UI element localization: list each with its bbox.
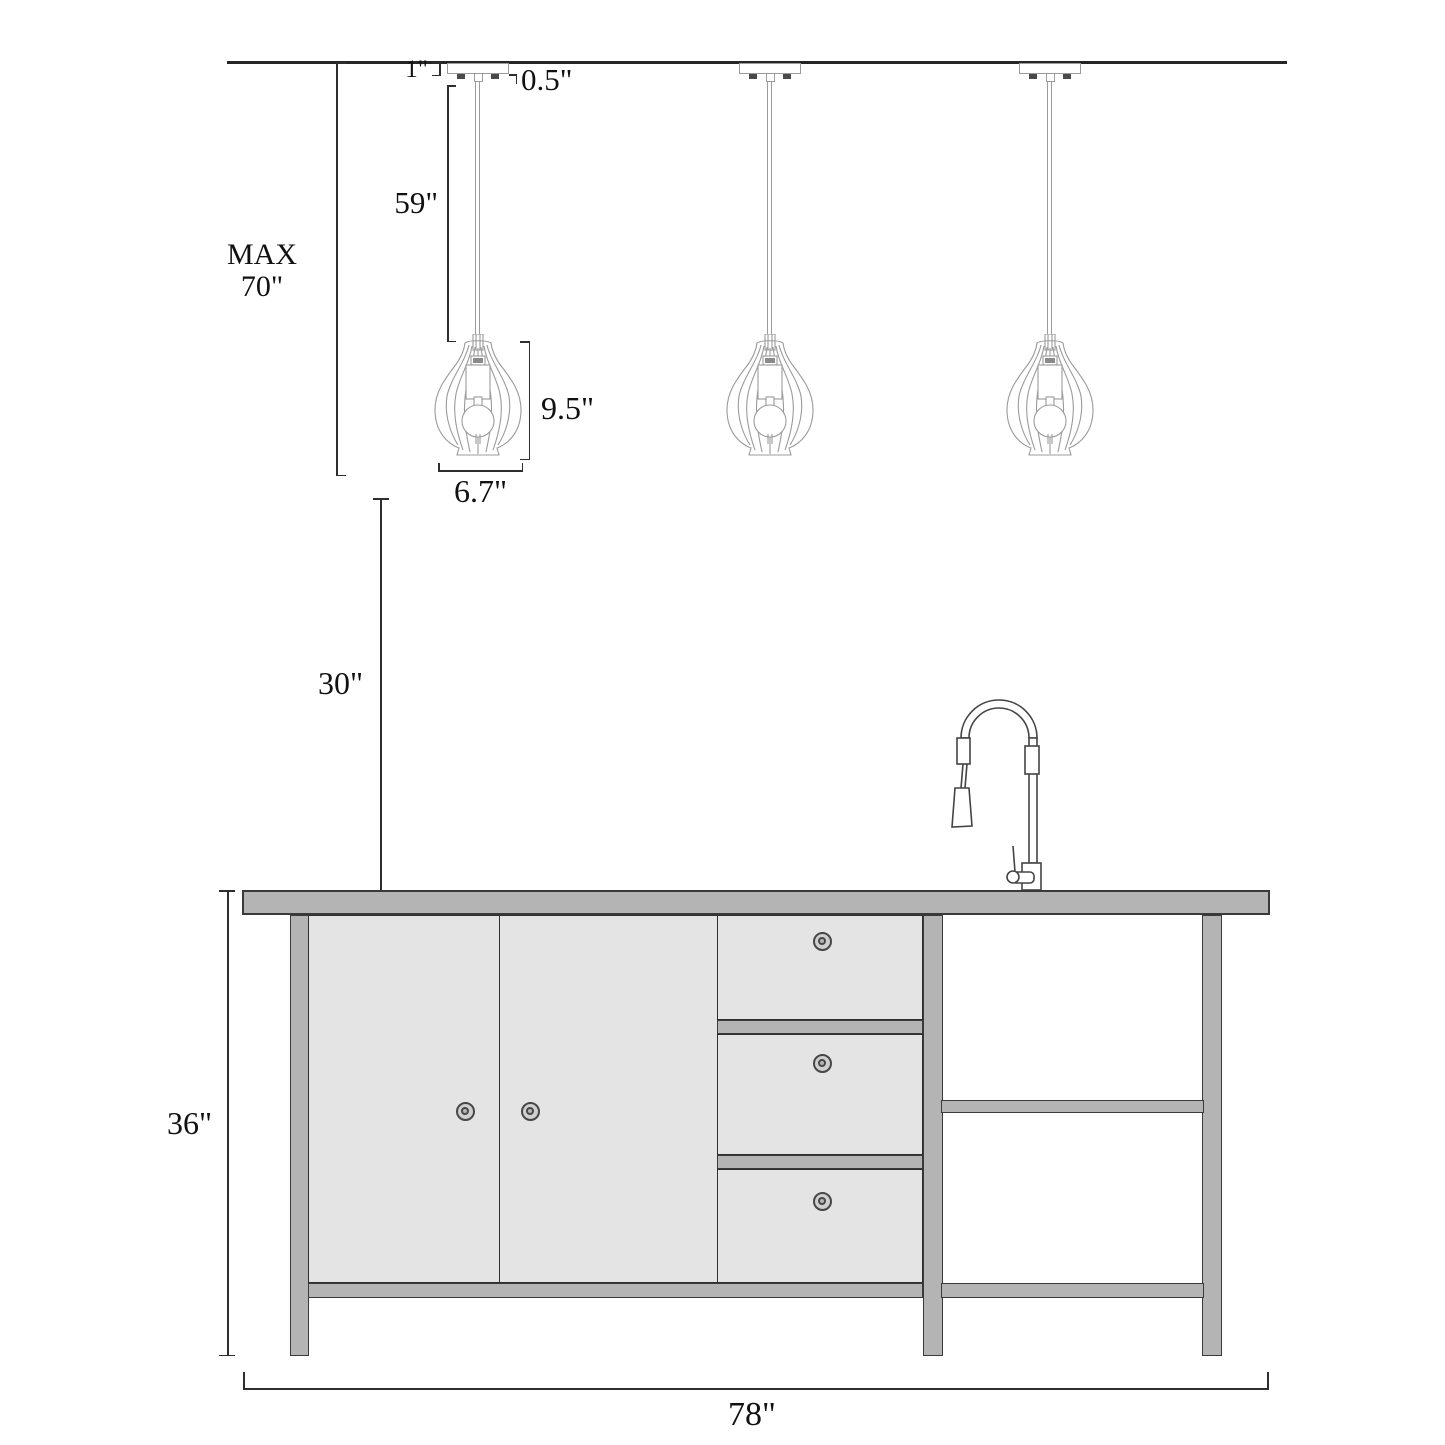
- drawer-bottom: [717, 1169, 923, 1283]
- canopy-stem: [474, 73, 483, 82]
- pendant-cord: [767, 82, 772, 336]
- open-shelf-middle: [941, 1100, 1204, 1113]
- canopy-screw-right: [491, 74, 499, 79]
- dim-label-shade-width: 6.7": [440, 473, 521, 510]
- kitchen-island: [0, 0, 1445, 1445]
- island-leg-left: [290, 915, 309, 1356]
- pendant-shade: [1006, 334, 1094, 460]
- cabinet-bottom-rail: [308, 1283, 923, 1298]
- canopy-stem: [766, 73, 775, 82]
- drawer-rail-1: [717, 1020, 923, 1034]
- pendant-shade: [726, 334, 814, 460]
- canopy-screw-right: [783, 74, 791, 79]
- dim-label-island-height: 36": [162, 1105, 212, 1142]
- dim-label-cord-length: 59": [392, 185, 438, 221]
- island-countertop: [242, 890, 1270, 915]
- dim-label-max-value: 70": [222, 271, 302, 303]
- drawer-knob-3: [813, 1192, 832, 1211]
- canopy-screw-left: [1029, 74, 1037, 79]
- open-shelf-bottom: [941, 1283, 1204, 1298]
- canopy-screw-left: [457, 74, 465, 79]
- door-knob-right: [521, 1102, 540, 1121]
- pendant-cord: [1047, 82, 1052, 336]
- faucet: [945, 676, 1055, 891]
- pendant-cord: [475, 82, 480, 336]
- dim-label-island-width: 78": [702, 1396, 802, 1434]
- cabinet-door-left: [308, 915, 501, 1283]
- drawer-rail-2: [717, 1155, 923, 1169]
- cabinet-door-right: [499, 915, 718, 1283]
- dim-label-hang-straight: 0.5": [521, 62, 572, 98]
- island-leg-right: [1202, 915, 1222, 1356]
- dim-label-max: MAX: [222, 239, 302, 271]
- drawer-middle: [717, 1034, 923, 1155]
- drawer-knob-2: [813, 1054, 832, 1073]
- dim-label-counter-clearance: 30": [313, 665, 363, 702]
- island-center-post: [923, 915, 943, 1356]
- door-knob-left: [456, 1102, 475, 1121]
- canopy-stem: [1046, 73, 1055, 82]
- dim-label-shade-height: 9.5": [541, 390, 594, 427]
- canopy-screw-right: [1063, 74, 1071, 79]
- pendant-shade: [434, 334, 522, 460]
- canopy-screw-left: [749, 74, 757, 79]
- drawer-knob-1: [813, 932, 832, 951]
- drawer-top: [717, 915, 923, 1020]
- dim-label-canopy-height: 1": [398, 56, 428, 84]
- dimension-diagram: 1" 0.5" 59" MAX 70" 9.5" 6.7": [0, 0, 1445, 1445]
